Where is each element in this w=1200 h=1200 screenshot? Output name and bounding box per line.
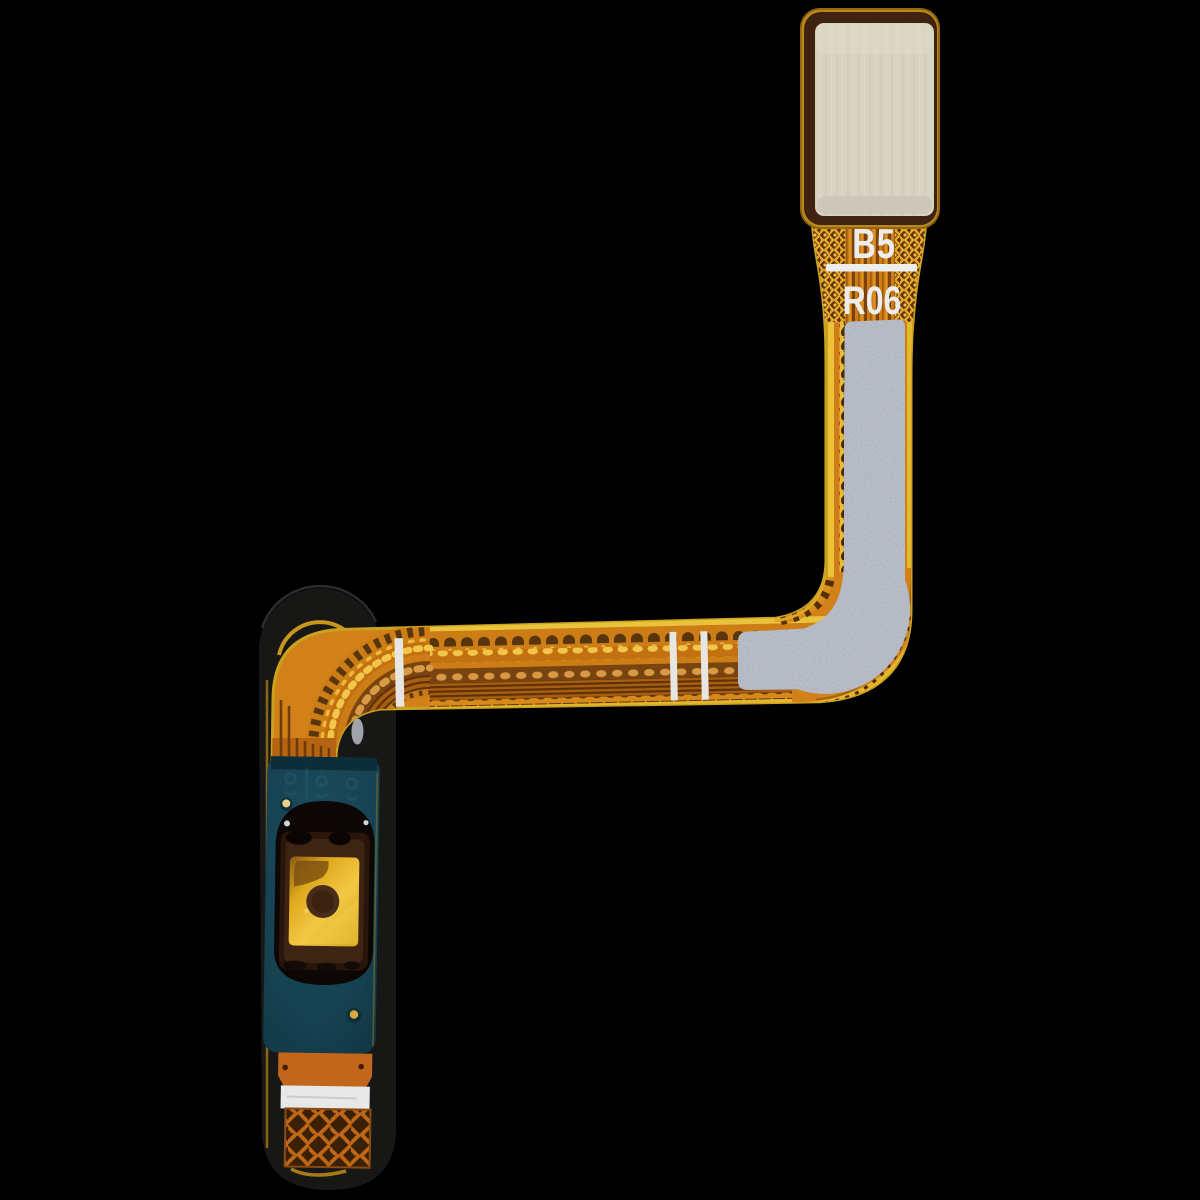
svg-text:R06: R06 bbox=[843, 278, 902, 323]
